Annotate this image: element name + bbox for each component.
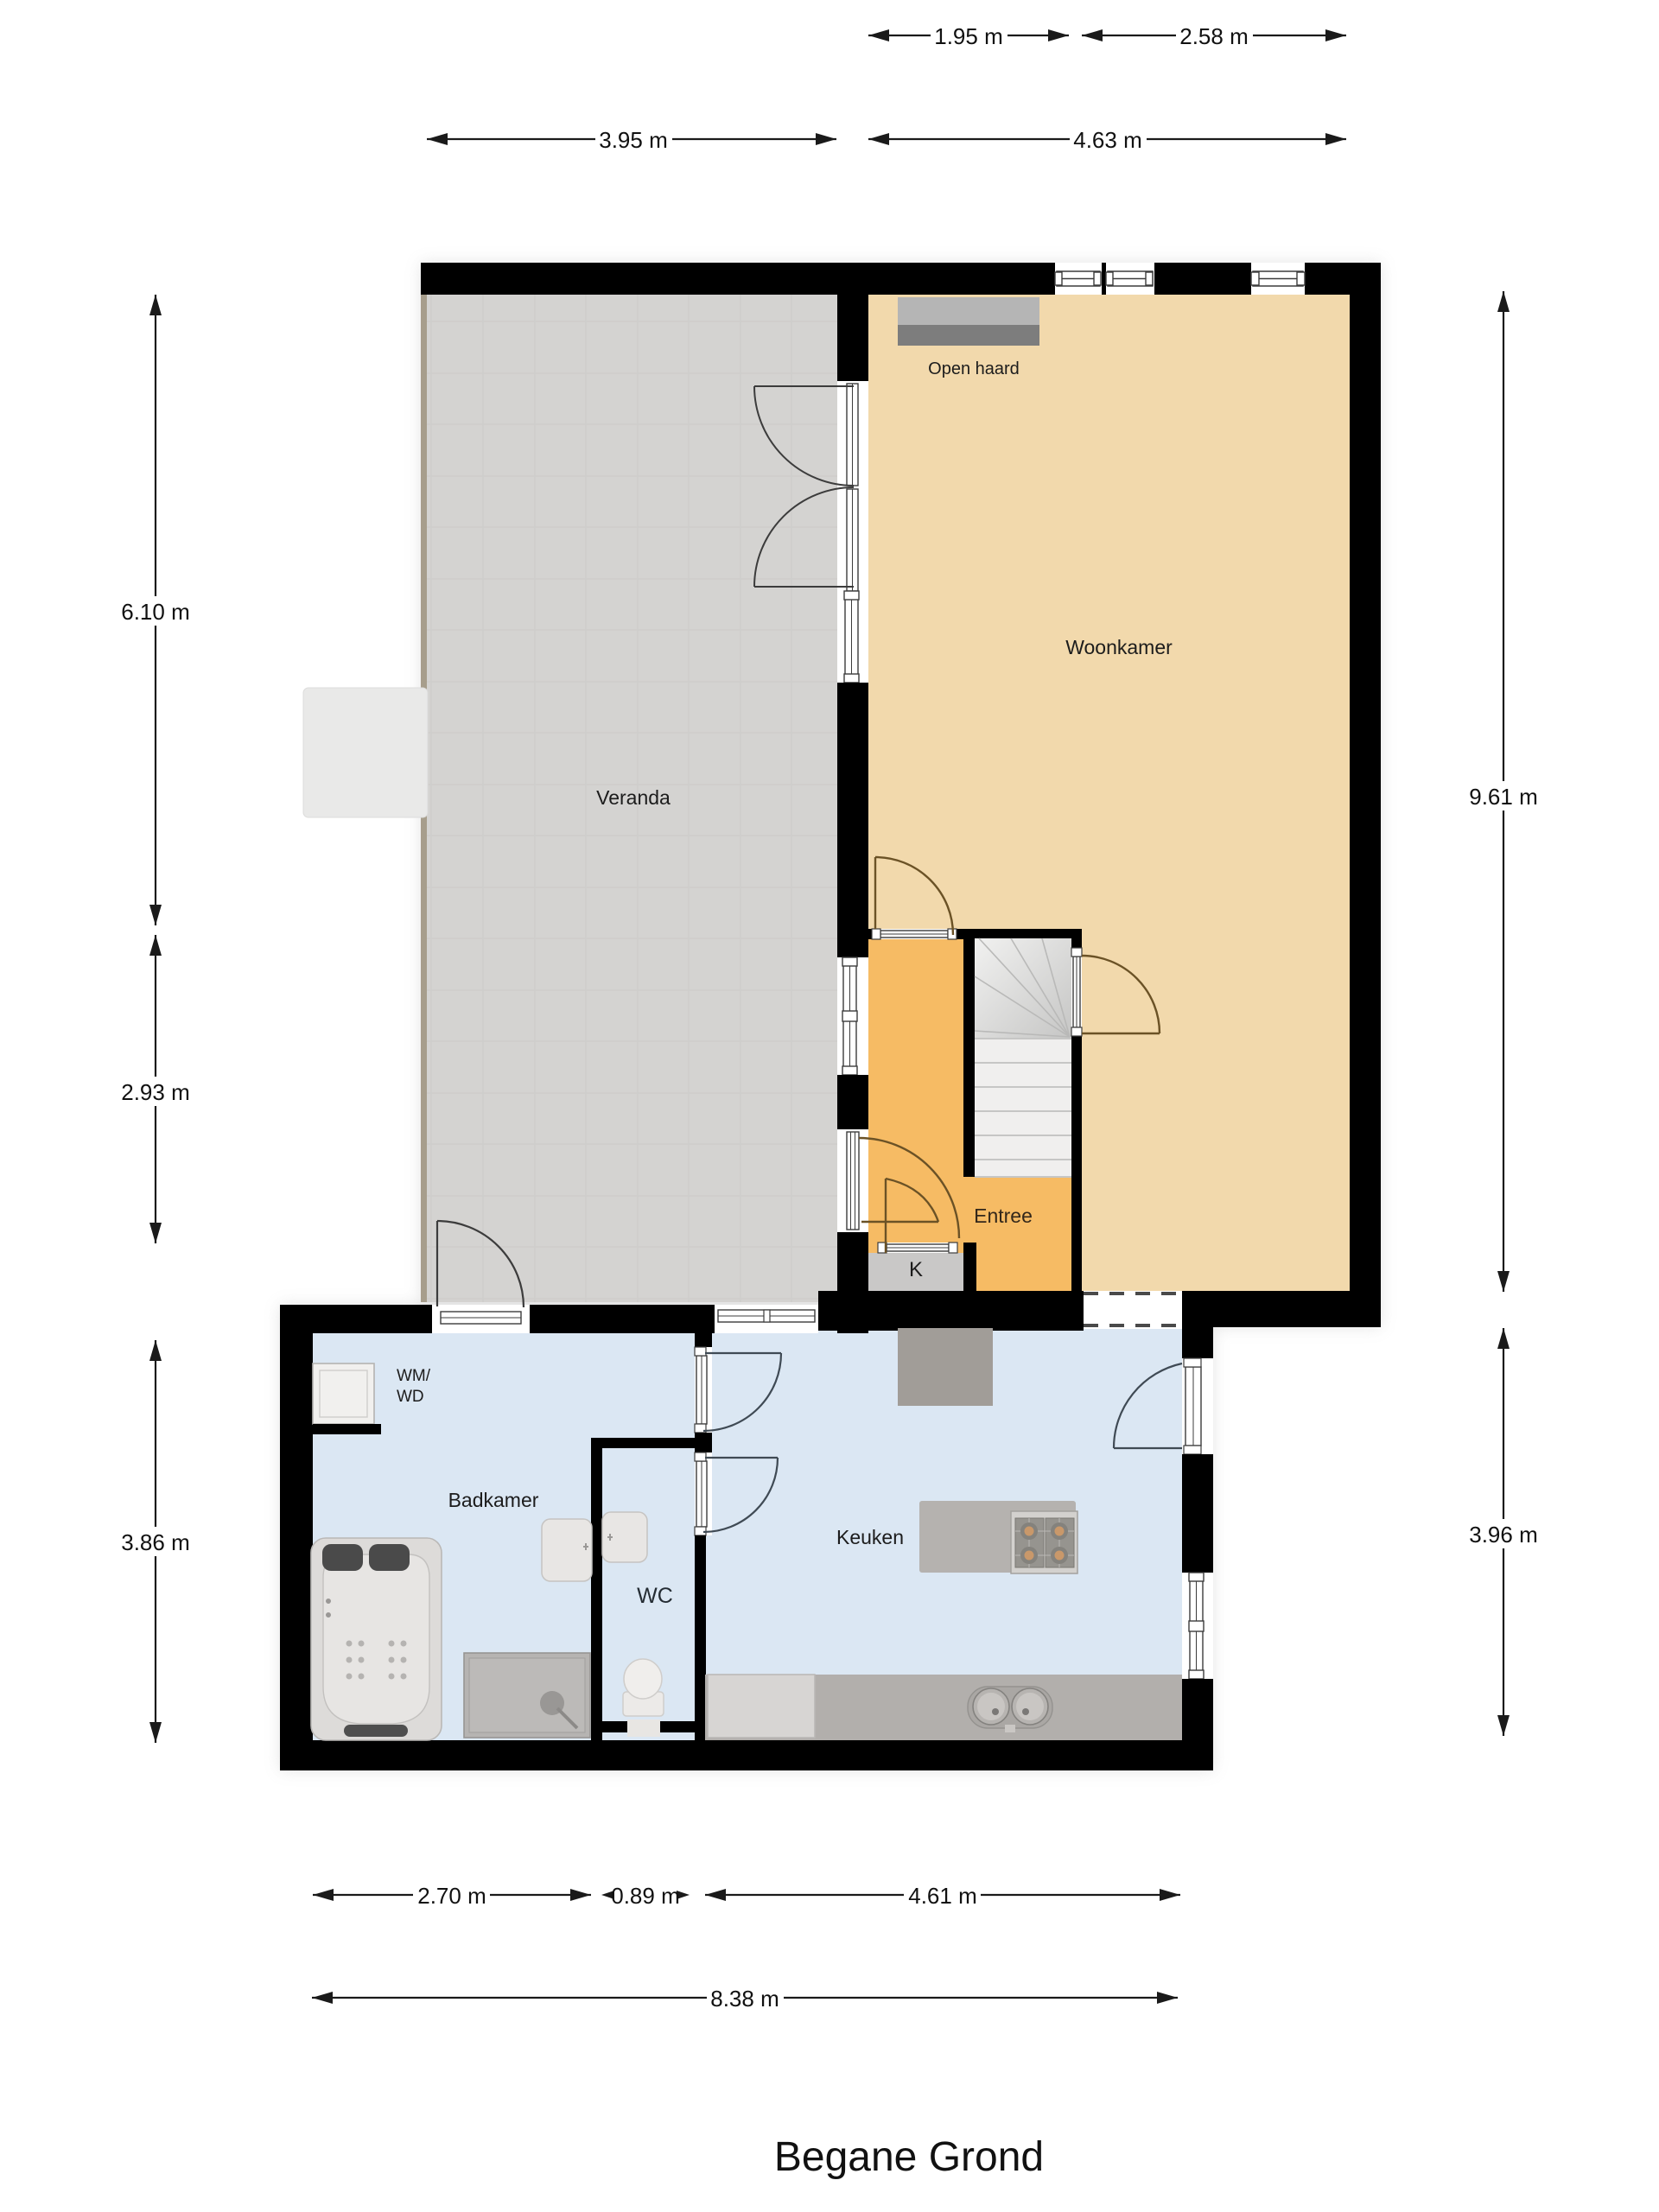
svg-text:6.10 m: 6.10 m [121,599,190,625]
svg-text:Keuken: Keuken [836,1526,904,1548]
svg-text:WM/: WM/ [397,1367,431,1385]
svg-text:3.95 m: 3.95 m [599,127,668,153]
svg-text:9.61 m: 9.61 m [1469,784,1538,810]
svg-text:3.96 m: 3.96 m [1469,1522,1538,1548]
svg-text:1.95 m: 1.95 m [934,23,1003,49]
svg-text:Entree: Entree [974,1205,1033,1227]
svg-text:Veranda: Veranda [596,786,671,809]
svg-text:Badkamer: Badkamer [448,1489,539,1511]
svg-text:Open haard: Open haard [928,359,1020,378]
svg-text:3.86 m: 3.86 m [121,1529,190,1555]
svg-text:4.63 m: 4.63 m [1073,127,1142,153]
svg-text:Begane Grond: Begane Grond [774,2134,1044,2180]
svg-text:2.93 m: 2.93 m [121,1079,190,1105]
svg-text:WC: WC [637,1584,673,1608]
svg-text:K: K [909,1258,923,1281]
svg-text:0.89 m: 0.89 m [611,1883,680,1909]
svg-text:4.61 m: 4.61 m [908,1883,977,1909]
svg-text:WD: WD [397,1388,424,1406]
svg-text:2.70 m: 2.70 m [417,1883,486,1909]
svg-text:8.38 m: 8.38 m [710,1986,779,2012]
svg-text:Woonkamer: Woonkamer [1065,636,1173,658]
svg-text:2.58 m: 2.58 m [1179,23,1249,49]
